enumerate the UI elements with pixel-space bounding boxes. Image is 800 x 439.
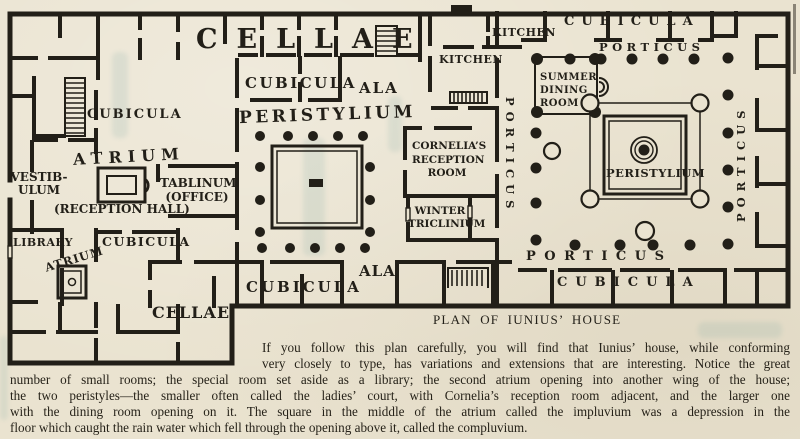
room-label-porticus-vertical-left: PORTICUS <box>503 97 516 214</box>
interior-walls <box>10 13 788 363</box>
peristyle-pool-left <box>272 146 362 228</box>
body-text-line-4: the two peristyles—the smaller often cal… <box>10 388 790 403</box>
body-text-line-6: floor which caught the rain water which … <box>10 420 790 435</box>
fountain-icon <box>631 137 657 163</box>
figure-caption: PLAN OF IUNIUS’ HOUSE <box>433 312 621 328</box>
room-label-library: LIBRARY <box>13 237 73 250</box>
room-label-cubicula-bottom-mid: CUBICULA <box>246 279 362 296</box>
room-label-cubicula-left-lower: CUBICULA <box>102 235 191 249</box>
door-swing <box>599 78 608 96</box>
book-page: CELLAE KITCHEN CUBICULA PORTICUS KITCHEN… <box>0 0 800 439</box>
outer-walls <box>10 5 788 363</box>
room-label-cellae-top: CELLAE <box>196 24 432 55</box>
room-label-cubicula-mid-top: CUBICULA <box>245 75 357 92</box>
room-label-reception-hall: (RECEPTION HALL) <box>54 203 190 217</box>
room-label-tablinum: TABLINUM (OFFICE) <box>160 177 234 205</box>
room-label-cubicula-bottom-right: CUBICULA <box>557 276 701 291</box>
room-label-cornelias-reception: CORNELIA’S RECEPTION ROOM <box>412 140 482 181</box>
room-label-cubicula-left-upper: CUBICULA <box>87 108 183 123</box>
body-text-line-2: very closely to type, has variations and… <box>262 356 790 371</box>
room-label-peristylium-right: PERISTYLIUM <box>606 167 705 180</box>
room-label-ala-top: ALA <box>359 80 399 97</box>
impluvium-main <box>98 168 148 202</box>
body-text-line-1: If you follow this plan carefully, you w… <box>262 340 790 355</box>
room-label-porticus-top: PORTICUS <box>599 41 704 54</box>
body-text-line-5: with the dining room opening on it. The … <box>10 404 790 419</box>
room-label-ala-bottom: ALA <box>359 263 396 280</box>
room-label-kitchen-upper: KITCHEN <box>492 27 556 40</box>
room-label-summer-dining: SUMMER DINING ROOM <box>540 71 597 110</box>
room-label-porticus-bottom: PORTICUS <box>526 250 673 265</box>
room-label-vestibulum: VESTIB- ULUM <box>8 171 70 197</box>
room-label-kitchen-lower: KITCHEN <box>439 54 503 67</box>
room-label-winter-triclinium: WINTER TRICLINIUM <box>408 205 472 230</box>
room-label-porticus-vertical-right: PORTICUS <box>735 105 748 222</box>
top-tab <box>451 5 472 14</box>
body-text-line-3: number of small rooms; the special room … <box>10 372 790 387</box>
room-label-cellae-bottom: CELLAE <box>152 304 230 322</box>
room-label-cubicula-top-right: CUBICULA <box>564 15 700 30</box>
